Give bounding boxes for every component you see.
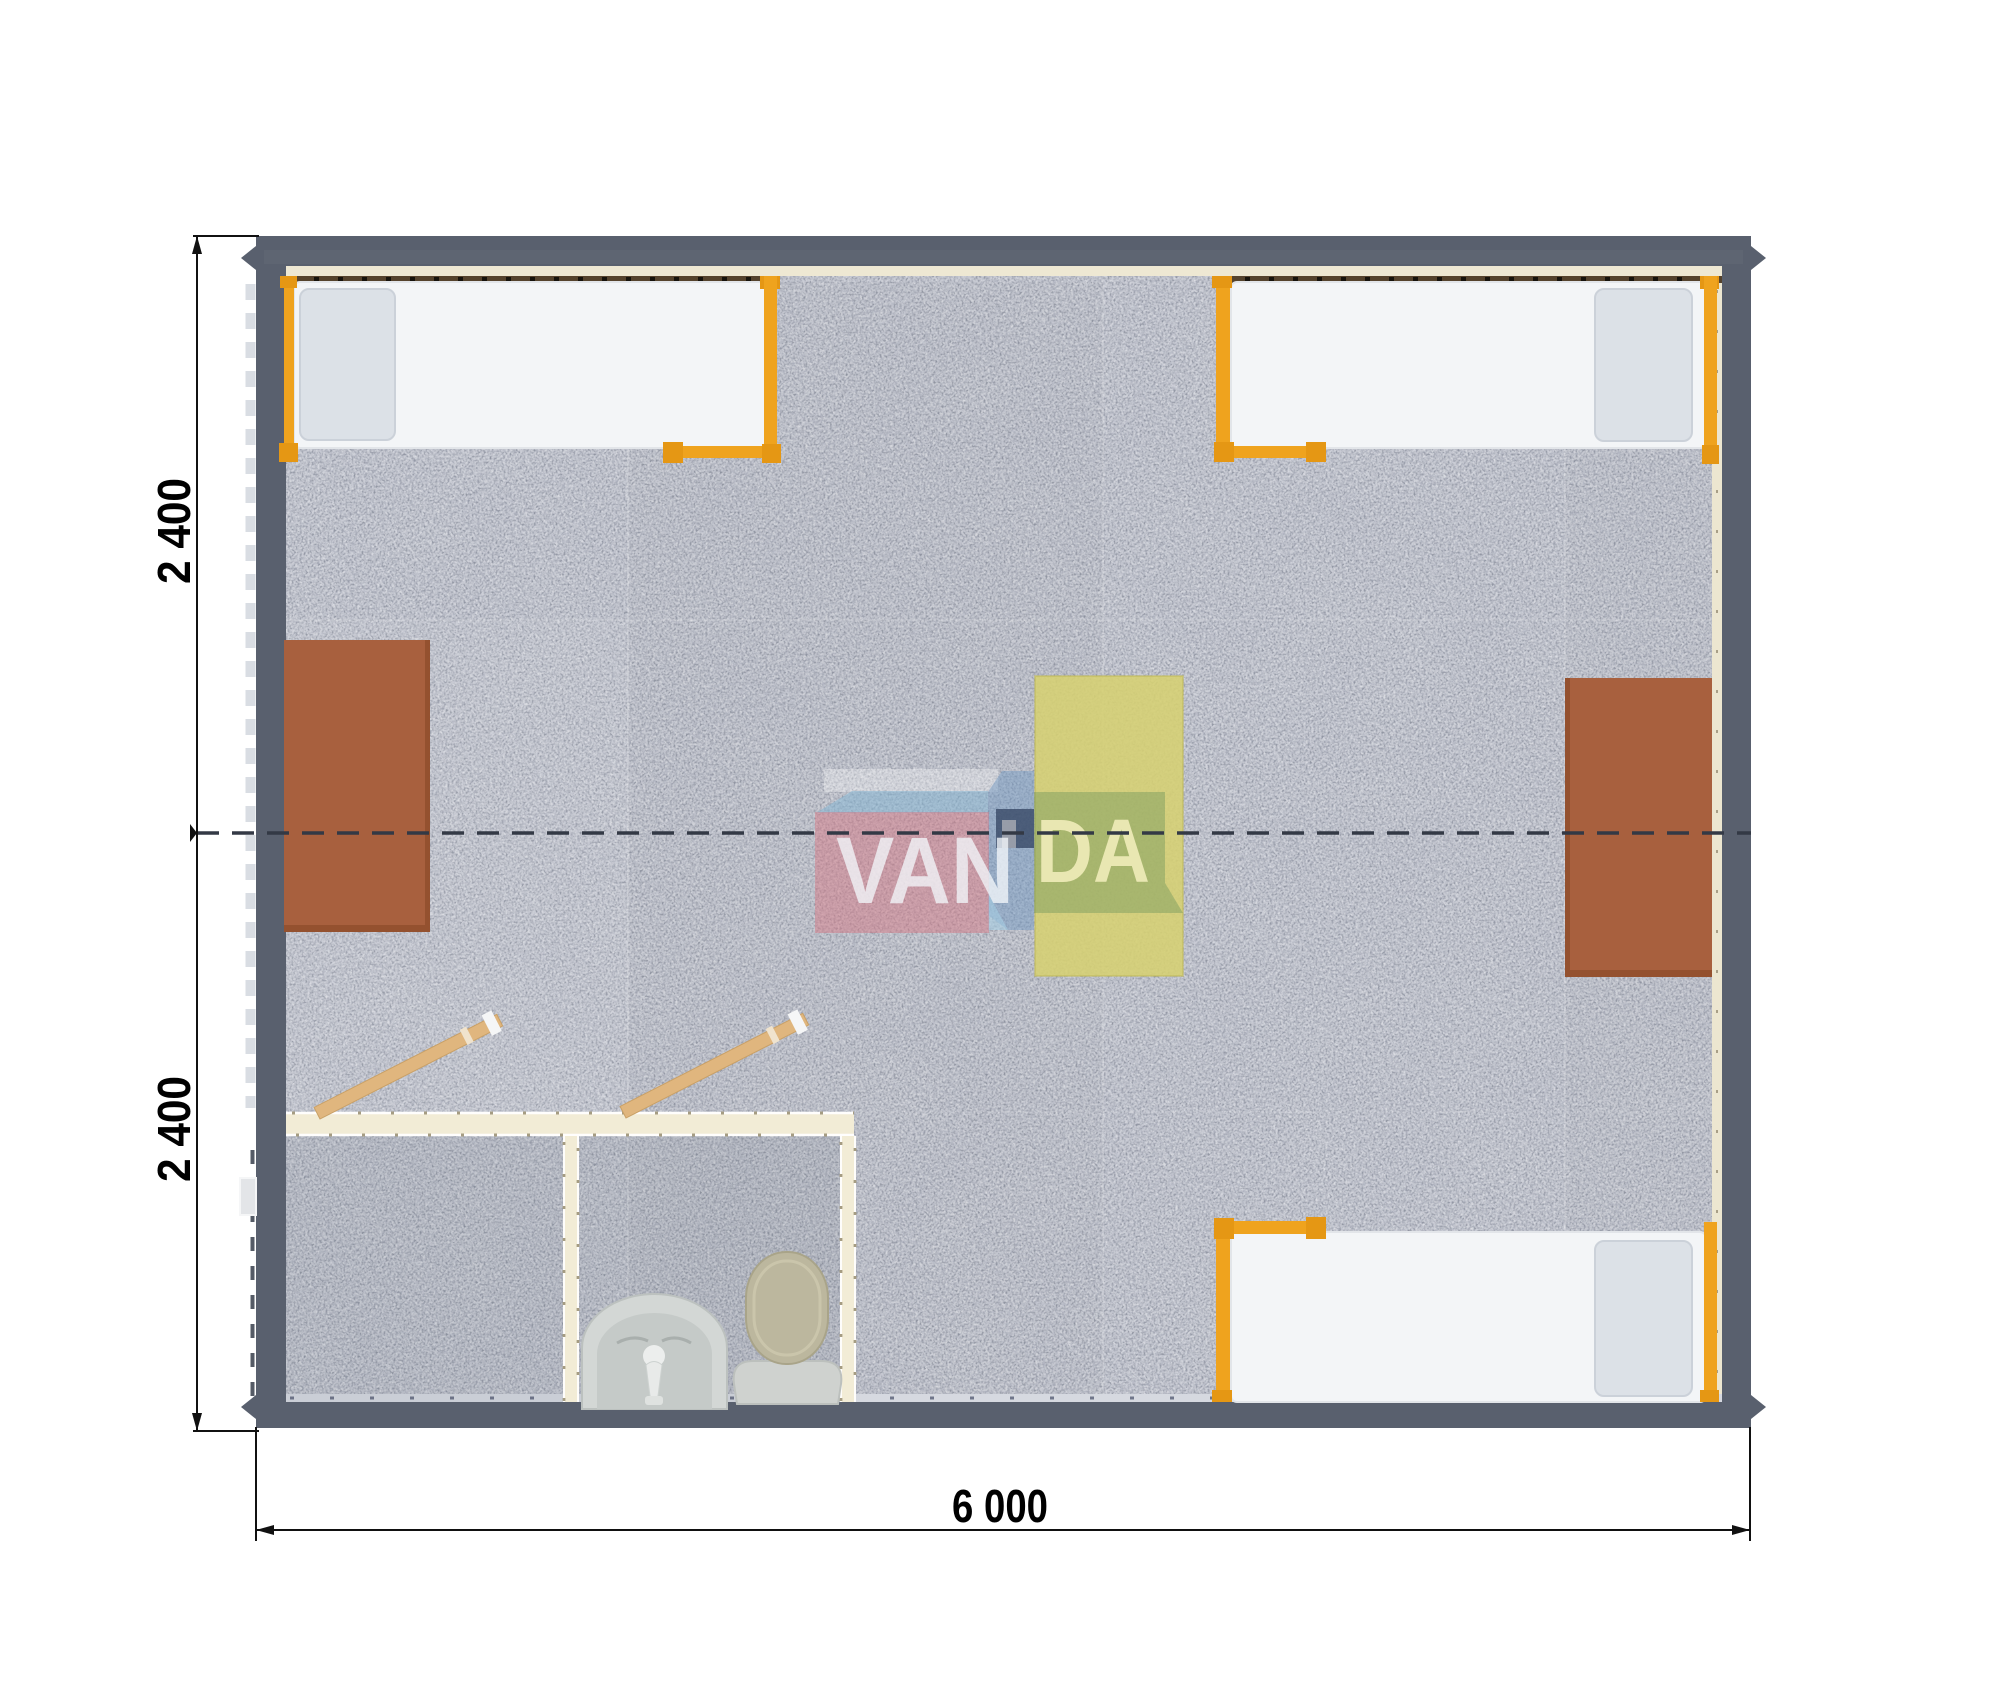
svg-text:6 000: 6 000 [952, 1480, 1048, 1532]
svg-text:2 400: 2 400 [148, 478, 200, 584]
svg-text:2 400: 2 400 [148, 1076, 200, 1182]
svg-text:DA: DA [1036, 802, 1150, 902]
